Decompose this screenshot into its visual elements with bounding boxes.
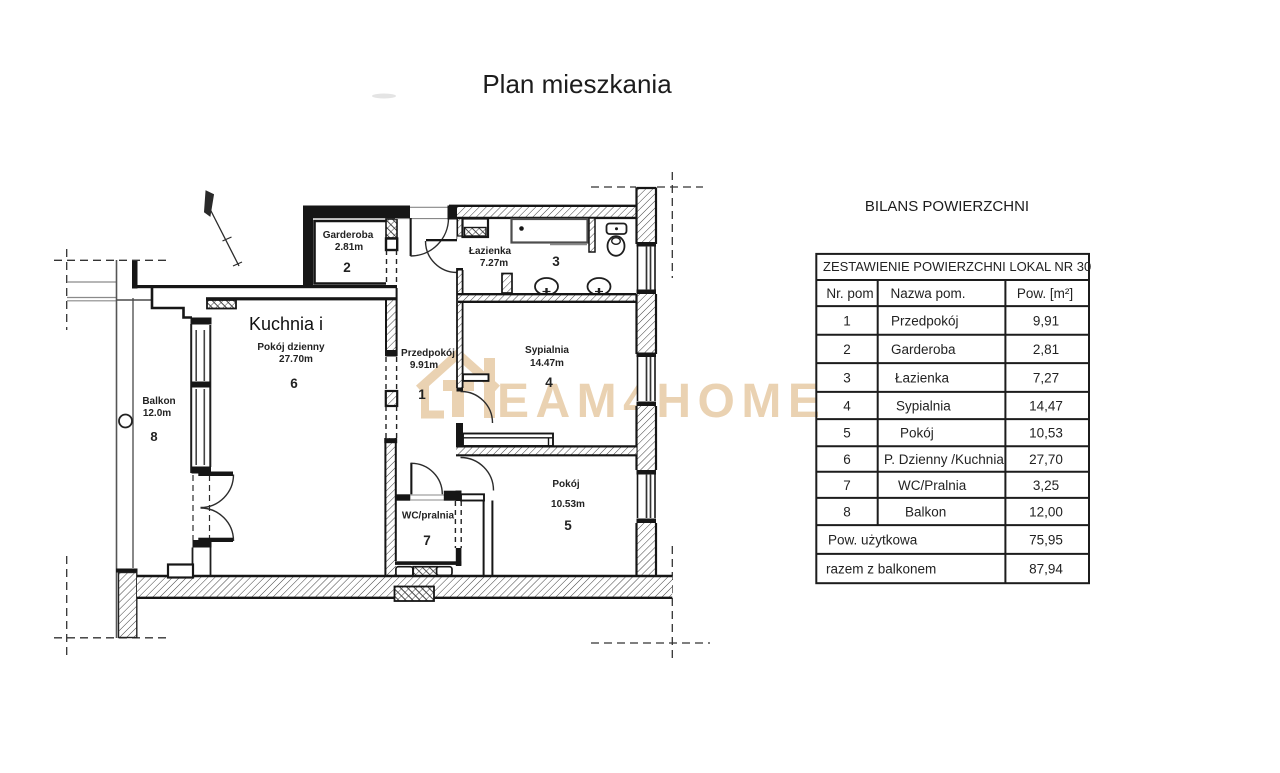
svg-text:Przedpokój: Przedpokój [401, 348, 455, 359]
svg-text:87,94: 87,94 [1029, 562, 1063, 577]
svg-text:1: 1 [418, 387, 426, 402]
svg-text:10.53m: 10.53m [551, 499, 585, 510]
svg-text:8: 8 [150, 429, 157, 444]
svg-text:12,00: 12,00 [1029, 505, 1063, 520]
svg-text:Łazienka: Łazienka [469, 246, 512, 257]
svg-text:14.47m: 14.47m [530, 358, 564, 369]
svg-text:8: 8 [843, 505, 851, 520]
svg-text:3: 3 [552, 254, 560, 269]
svg-text:Przedpokój: Przedpokój [891, 314, 959, 329]
svg-text:Pokój: Pokój [552, 479, 579, 490]
svg-text:7: 7 [843, 478, 851, 493]
svg-text:75,95: 75,95 [1029, 533, 1063, 548]
svg-text:14,47: 14,47 [1029, 399, 1063, 414]
svg-text:5: 5 [843, 426, 851, 441]
svg-text:Sypialnia: Sypialnia [525, 345, 569, 356]
svg-text:razem z balkonem: razem z balkonem [826, 562, 936, 577]
svg-text:Pow. [m²]: Pow. [m²] [1017, 286, 1073, 301]
svg-text:Balkon: Balkon [905, 505, 946, 520]
svg-text:Pow. użytkowa: Pow. użytkowa [828, 533, 918, 548]
svg-text:2,81: 2,81 [1033, 342, 1059, 357]
svg-text:12.0m: 12.0m [143, 408, 171, 419]
svg-text:Sypialnia: Sypialnia [896, 399, 951, 414]
svg-text:6: 6 [290, 376, 298, 391]
svg-text:2.81m: 2.81m [335, 242, 363, 253]
svg-text:4: 4 [843, 399, 851, 414]
svg-text:Garderoba: Garderoba [891, 342, 956, 357]
svg-text:2: 2 [843, 342, 851, 357]
svg-text:Nazwa pom.: Nazwa pom. [890, 286, 965, 301]
svg-text:P. Dzienny /Kuchnia: P. Dzienny /Kuchnia [884, 452, 1004, 467]
svg-text:3: 3 [843, 371, 851, 386]
svg-text:Kuchnia i: Kuchnia i [249, 314, 323, 334]
svg-text:BILANS POWIERZCHNI: BILANS POWIERZCHNI [865, 198, 1029, 215]
svg-text:Pokój dzienny: Pokój dzienny [257, 342, 325, 353]
svg-text:7: 7 [423, 533, 431, 548]
svg-text:1: 1 [843, 314, 851, 329]
svg-text:Plan mieszkania: Plan mieszkania [482, 69, 672, 99]
svg-text:Nr. pom: Nr. pom [826, 286, 873, 301]
svg-text:Pokój: Pokój [900, 426, 934, 441]
svg-text:Garderoba: Garderoba [323, 230, 374, 241]
svg-text:3,25: 3,25 [1033, 478, 1059, 493]
svg-text:6: 6 [843, 452, 851, 467]
svg-text:9.91m: 9.91m [410, 360, 438, 371]
svg-text:10,53: 10,53 [1029, 426, 1063, 441]
svg-text:7,27: 7,27 [1033, 371, 1059, 386]
svg-text:WC/Pralnia: WC/Pralnia [898, 478, 967, 493]
svg-text:27.70m: 27.70m [279, 354, 313, 365]
svg-text:9,91: 9,91 [1033, 314, 1059, 329]
svg-text:Balkon: Balkon [142, 396, 175, 407]
svg-text:27,70: 27,70 [1029, 452, 1063, 467]
svg-text:5: 5 [564, 518, 572, 533]
svg-text:ZESTAWIENIE POWIERZCHNI LOKAL: ZESTAWIENIE POWIERZCHNI LOKAL NR 30 [823, 259, 1091, 274]
svg-text:WC/pralnia: WC/pralnia [402, 511, 455, 522]
svg-text:7.27m: 7.27m [480, 258, 508, 269]
svg-text:Łazienka: Łazienka [895, 371, 950, 386]
svg-text:4: 4 [545, 375, 553, 390]
svg-text:2: 2 [343, 260, 351, 275]
